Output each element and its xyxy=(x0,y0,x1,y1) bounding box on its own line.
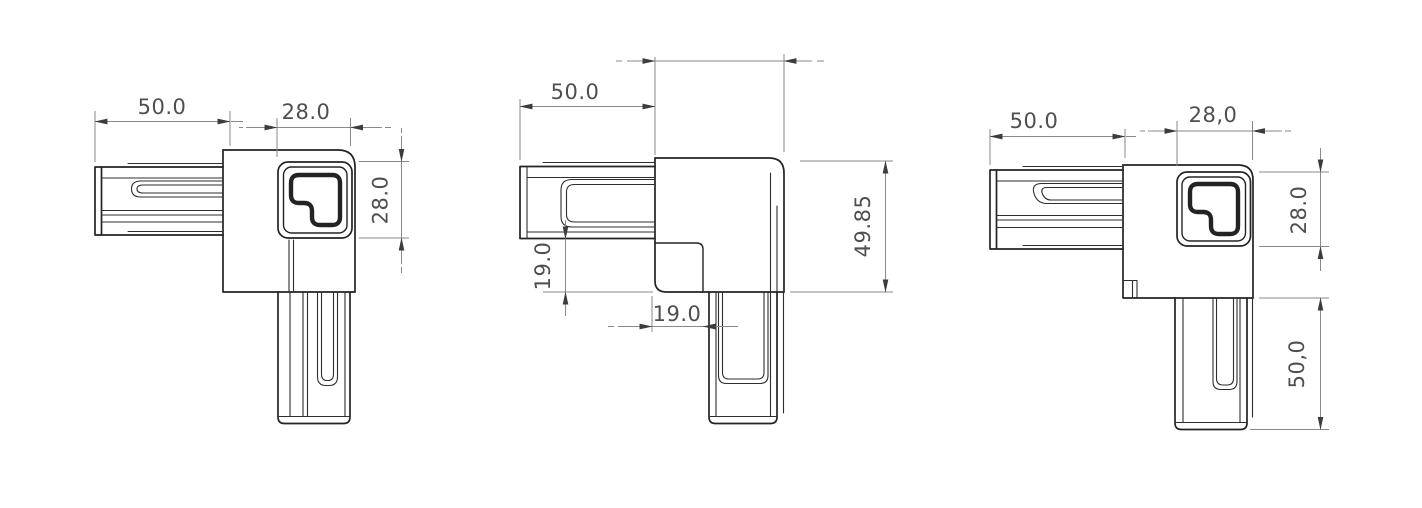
back-prong-detail xyxy=(1175,298,1253,423)
front-prong-outline xyxy=(278,292,350,424)
front-dim-bore-width: 28.0 xyxy=(239,100,391,157)
back-dim-arm-length: 50.0 xyxy=(990,109,1136,165)
back-arm-detail-lines xyxy=(997,167,1124,246)
dim-label: 50,0 xyxy=(1285,340,1309,389)
back-view: 50.0 28,0 28.0 50,0 xyxy=(990,103,1329,430)
side-prong-outline xyxy=(709,292,777,424)
back-step-lines xyxy=(1123,281,1137,299)
front-dim-bore-height: 28.0 xyxy=(359,128,409,273)
technical-drawing: 50.0 28.0 28.0 xyxy=(0,0,1422,508)
dim-label: 50.0 xyxy=(551,80,600,104)
dim-label: 28.0 xyxy=(369,176,393,225)
front-arm-outline xyxy=(95,167,223,235)
side-step-edge xyxy=(655,243,703,292)
dim-label: 28.0 xyxy=(1287,186,1311,235)
side-dim-arm-length: 50.0 xyxy=(520,80,655,160)
back-prong-outline xyxy=(1175,298,1247,430)
dim-label: 50.0 xyxy=(138,95,187,119)
side-dim-overall-height: 49.85 xyxy=(790,161,893,292)
extension-lines xyxy=(990,129,1125,165)
front-arm-slot xyxy=(132,181,224,197)
back-arm-outline xyxy=(990,170,1123,249)
side-corner-block-outline xyxy=(655,158,784,292)
dim-label: 49.85 xyxy=(851,195,875,258)
side-arm-slot xyxy=(561,180,655,228)
side-block-inner-lines xyxy=(771,173,778,292)
back-dim-leg-length: 50,0 xyxy=(1250,298,1329,430)
extension-lines xyxy=(790,161,893,292)
front-bore-gasket xyxy=(291,175,340,225)
side-prong-detail xyxy=(709,292,784,417)
dim-label: 28,0 xyxy=(1189,103,1238,127)
side-view: 50.0 19.0 19.0 49.85 xyxy=(520,54,893,424)
back-dim-bore-height: 28.0 xyxy=(1259,148,1329,271)
front-view: 50.0 28.0 28.0 xyxy=(95,95,409,424)
side-dim-step-height: 19.0 xyxy=(531,220,653,316)
extension-lines xyxy=(655,54,784,155)
back-arm-slot xyxy=(1033,184,1123,204)
extension-lines xyxy=(1177,121,1253,166)
drawing-canvas: 50.0 28.0 28.0 xyxy=(0,0,1422,508)
dim-label: 19.0 xyxy=(653,302,702,326)
front-dim-arm-length: 50.0 xyxy=(95,95,243,162)
front-prong-detail xyxy=(278,292,350,417)
side-dim-top-unlabeled xyxy=(616,54,824,155)
front-step-lines xyxy=(289,240,294,292)
dim-label: 28.0 xyxy=(282,100,331,124)
back-dim-bore-width: 28,0 xyxy=(1140,103,1291,166)
dim-label: 19.0 xyxy=(531,242,555,291)
back-bore-gasket xyxy=(1190,184,1238,234)
dim-label: 50.0 xyxy=(1010,109,1059,133)
